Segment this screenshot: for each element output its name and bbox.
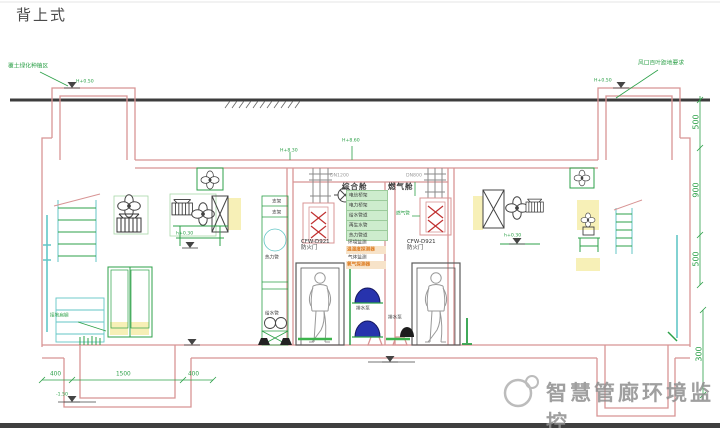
left-tank — [56, 298, 104, 342]
pipe-label-row: 电信桥架 — [346, 190, 388, 201]
pump-label-2: 排水泵 — [388, 315, 402, 320]
pipe-label-row: 再生水管 — [346, 220, 388, 231]
elev-text-right-shaft: H+0.50 — [594, 78, 612, 83]
dim-right-3: 500 — [693, 251, 701, 266]
right-cabin-equipment — [483, 168, 677, 341]
elevation-marker-platform-left — [182, 242, 198, 248]
grounding-label: 接地扁钢 — [50, 313, 69, 318]
door-left — [296, 263, 344, 345]
ceiling-fan-icon-left — [201, 171, 219, 189]
cad-drawing-page: 背上式 综合舱 燃气舱 DN1200 DN800 电信桥架 电力桥架 给水管道 … — [0, 0, 720, 428]
annotation-graphics — [40, 70, 658, 160]
elevation-marker-slab-center — [382, 356, 398, 362]
right-elbow — [668, 332, 677, 341]
support-foot-1 — [258, 338, 270, 345]
platform-elev-left: h+0.30 — [176, 231, 193, 236]
pipe-label-row: 给水管道 — [346, 210, 388, 221]
elevation-marker-pit-left — [64, 396, 80, 402]
valve-assembly-right — [420, 168, 451, 235]
left-ladder — [54, 194, 100, 262]
pipe-mid-label: 热力管 — [265, 255, 279, 260]
person-figure-left — [309, 273, 331, 342]
fan-stand — [578, 238, 600, 252]
watermark-logo-icon — [500, 372, 548, 412]
fire-door-label-right: CFW-D921 防火门 — [407, 238, 436, 250]
elevation-marker-platform-right — [509, 238, 525, 244]
annotation-top-left: 覆土绿化种植区 — [8, 63, 48, 69]
annotation-top-right: 风口百叶距地要求 — [638, 60, 684, 66]
elev-text-left-shaft: H+0.50 — [76, 79, 94, 84]
roof-elev-2: H+8.60 — [342, 138, 360, 143]
cabin-label-right: 燃气舱 — [388, 183, 414, 191]
support-foot-2 — [280, 338, 292, 345]
pipe-low-label: 给水管 — [265, 311, 279, 316]
pipe-rack-column — [262, 196, 288, 345]
elevation-marker-right-shaft — [613, 82, 629, 88]
dn-label-left: DN1200 — [330, 173, 349, 178]
dim-right-1: 500 — [693, 114, 701, 129]
dim-right-lower: 300 — [696, 346, 704, 361]
ceiling-fan-icon-right — [574, 170, 590, 186]
platform-elev-right: h+0.30 — [504, 233, 521, 238]
pipe-section-circle-2 — [276, 318, 287, 329]
dn-label-right: DN800 — [406, 173, 422, 178]
fire-door-label-left: CFW-D921 防火门 — [301, 238, 330, 250]
grille-icon-right — [526, 199, 543, 212]
pipe-label-row: 电力桥架 — [346, 200, 388, 211]
right-ladder — [614, 200, 642, 254]
pit-elev-left: -1.50 — [56, 392, 68, 397]
valve-assembly-left — [303, 168, 334, 243]
sump-pump-dome-1 — [355, 288, 380, 303]
green-elbow-pipe — [462, 318, 472, 344]
person-figure-right — [425, 273, 447, 342]
fan-icon-right-1 — [506, 197, 529, 220]
fan-icon-left-2 — [192, 203, 215, 226]
dim-right-2: 900 — [693, 182, 701, 197]
page-title: 背上式 — [16, 8, 67, 23]
dim-400-right: 400 — [188, 371, 199, 377]
rack-label-2: 支架 — [272, 210, 281, 215]
pipe-section-circle-1 — [265, 318, 276, 329]
ground-line — [10, 100, 710, 108]
door-right — [412, 263, 460, 345]
sensor-value-row: 氧气探测器 — [346, 261, 386, 269]
dim-1500: 1500 — [116, 371, 131, 377]
grille-icon-left-2 — [172, 200, 192, 215]
roof-elev-1: H+8.30 — [280, 148, 298, 153]
grounding-leader — [78, 322, 106, 331]
elevation-marker-floor-left — [184, 339, 200, 345]
damper-icon-right — [483, 190, 504, 228]
left-cabin-equipment — [43, 168, 228, 345]
watermark-text: 智慧管廊环境监控 — [546, 377, 720, 428]
pump-label-1: 排水泵 — [356, 306, 370, 311]
grass-symbol — [80, 336, 100, 345]
dim-400-left: 400 — [50, 371, 61, 377]
sensor-value-row: 温湿度探测器 — [346, 246, 386, 254]
sump-pump-dome-2 — [355, 321, 380, 337]
rack-label-1: 支架 — [272, 199, 281, 204]
gas-pipe-label: 燃气管 — [396, 211, 410, 216]
